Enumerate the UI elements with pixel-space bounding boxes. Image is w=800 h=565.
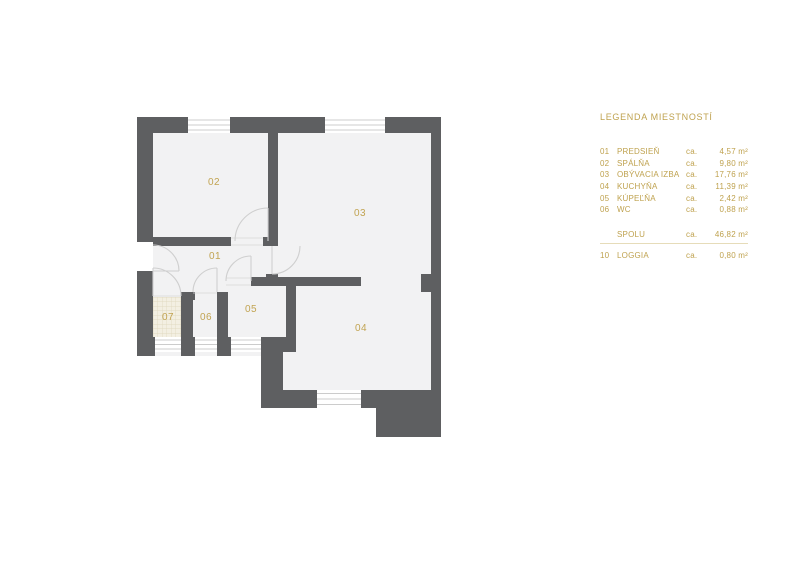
legend-title: LEGENDA MIESTNOSTÍ bbox=[600, 112, 748, 122]
legend-room-area: 11,39 m² bbox=[704, 182, 748, 191]
legend-total-area: 46,82 m² bbox=[704, 230, 748, 239]
window-livingroom bbox=[325, 117, 385, 133]
entrance-opening bbox=[137, 242, 153, 271]
legend-room-number: 10 bbox=[600, 251, 617, 260]
floorplan-page: 01 02 03 04 05 06 07 LEGENDA MIESTNOSTÍ … bbox=[0, 0, 800, 565]
legend-row: 02 SPÁLŇA ca. 9,80 m² bbox=[600, 159, 748, 171]
window-bedroom bbox=[188, 117, 230, 133]
legend-total-label: SPOLU bbox=[617, 230, 686, 239]
legend-room-name: KÚPEĽŇA bbox=[617, 194, 686, 203]
room-legend: LEGENDA MIESTNOSTÍ 01 PREDSIEŇ ca. 4,57 … bbox=[600, 112, 748, 263]
legend-ca-label: ca. bbox=[686, 170, 704, 179]
legend-ca-label: ca. bbox=[686, 205, 704, 214]
legend-ca-label: ca. bbox=[686, 147, 704, 156]
legend-row: 06 WC ca. 0,88 m² bbox=[600, 205, 748, 217]
legend-ca-label: ca. bbox=[686, 159, 704, 168]
legend-row: 05 KÚPEĽŇA ca. 2,42 m² bbox=[600, 194, 748, 206]
window-kitchen bbox=[317, 390, 361, 408]
floorplan-drawing: 01 02 03 04 05 06 07 bbox=[0, 0, 800, 565]
legend-row: 04 KUCHYŇA ca. 11,39 m² bbox=[600, 182, 748, 194]
room-label-05: 05 bbox=[245, 304, 257, 315]
legend-room-number: 04 bbox=[600, 182, 617, 191]
legend-room-name: PREDSIEŇ bbox=[617, 147, 686, 156]
legend-room-name: LOGGIA bbox=[617, 251, 686, 260]
legend-total-row: SPOLU ca. 46,82 m² bbox=[600, 230, 748, 244]
legend-room-area: 4,57 m² bbox=[704, 147, 748, 156]
legend-room-number: 02 bbox=[600, 159, 617, 168]
window-bottom-wc bbox=[195, 337, 217, 352]
legend-room-number: 06 bbox=[600, 205, 617, 214]
legend-room-number: 05 bbox=[600, 194, 617, 203]
window-bottom-left bbox=[155, 337, 181, 352]
legend-room-area: 2,42 m² bbox=[704, 194, 748, 203]
room-label-06: 06 bbox=[200, 312, 212, 323]
room-label-01: 01 bbox=[209, 251, 221, 262]
legend-room-number: 01 bbox=[600, 147, 617, 156]
legend-ca-label: ca. bbox=[686, 194, 704, 203]
legend-row: 03 OBÝVACIA IZBA ca. 17,76 m² bbox=[600, 170, 748, 182]
legend-loggia-row: 10 LOGGIA ca. 0,80 m² bbox=[600, 251, 748, 263]
legend-room-name: OBÝVACIA IZBA bbox=[617, 170, 686, 179]
room-label-04: 04 bbox=[355, 323, 367, 334]
legend-room-area: 0,88 m² bbox=[704, 205, 748, 214]
legend-ca-label: ca. bbox=[686, 182, 704, 191]
legend-room-name: WC bbox=[617, 205, 686, 214]
legend-row: 01 PREDSIEŇ ca. 4,57 m² bbox=[600, 147, 748, 159]
legend-room-name: KUCHYŇA bbox=[617, 182, 686, 191]
room-label-02: 02 bbox=[208, 177, 220, 188]
legend-room-area: 17,76 m² bbox=[704, 170, 748, 179]
legend-room-number: 03 bbox=[600, 170, 617, 179]
room-label-07: 07 bbox=[162, 312, 174, 323]
window-bottom-bath bbox=[231, 337, 261, 352]
legend-room-area: 9,80 m² bbox=[704, 159, 748, 168]
legend-ca-label: ca. bbox=[686, 251, 704, 260]
legend-ca-label: ca. bbox=[686, 230, 704, 239]
room-label-03: 03 bbox=[354, 208, 366, 219]
legend-room-name: SPÁLŇA bbox=[617, 159, 686, 168]
legend-room-area: 0,80 m² bbox=[704, 251, 748, 260]
